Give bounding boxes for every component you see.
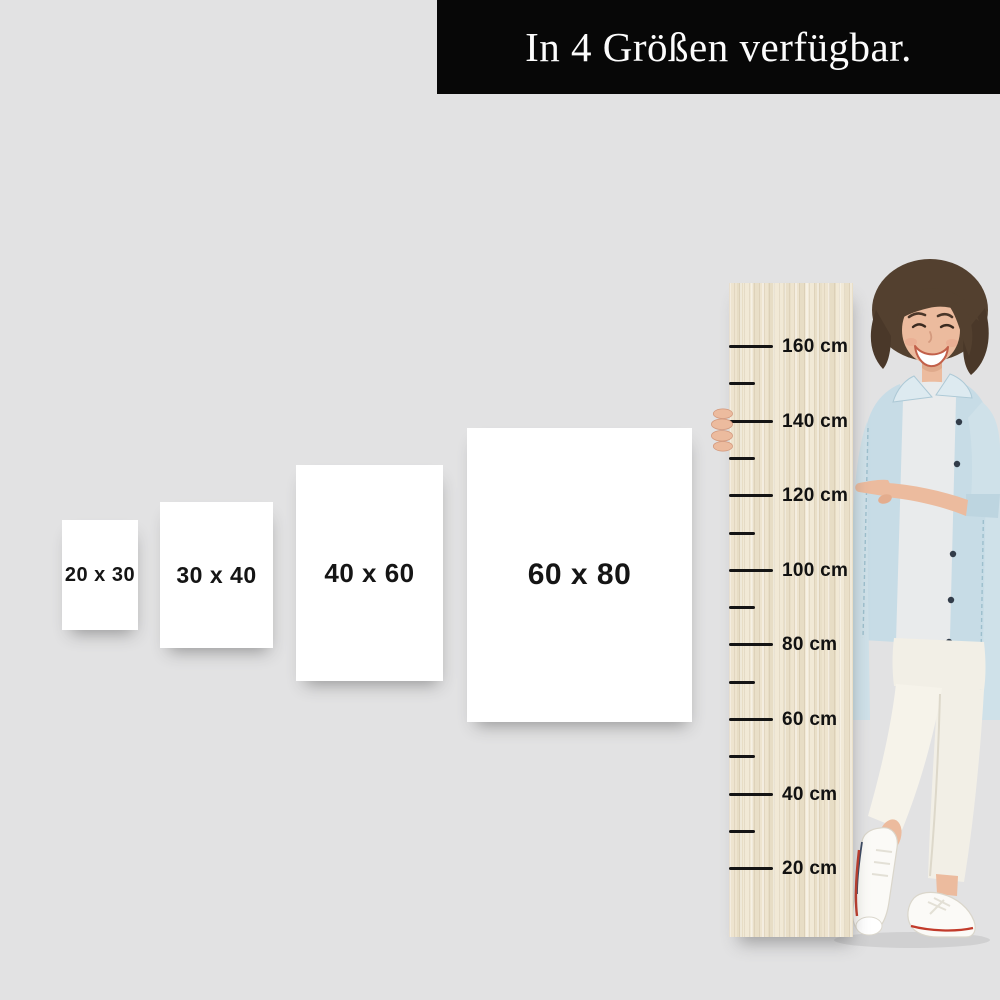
poster-size-30x40: 30 x 40: [160, 502, 273, 648]
toe-cap: [856, 917, 882, 935]
ruler-tick-minor: [729, 830, 755, 833]
ruler-tick-80cm: [729, 643, 773, 646]
ruler-tick-120cm: [729, 494, 773, 497]
poster-size-20x30: 20 x 30: [62, 520, 138, 630]
ruler-tick-minor: [729, 681, 755, 684]
rolled-cuff: [966, 494, 1000, 518]
ruler-label-100cm: 100 cm: [782, 560, 848, 582]
blush: [905, 338, 917, 346]
wooden-height-ruler: 160 cm 140 cm 120 cm 100 cm 80 cm 60 cm …: [729, 283, 853, 937]
ruler-tick-100cm: [729, 569, 773, 572]
ruler-label-80cm: 80 cm: [782, 634, 837, 656]
crossed-leg: [868, 684, 942, 830]
ruler-tick-minor: [729, 755, 755, 758]
ruler-tick-minor: [729, 606, 755, 609]
poster-size-label: 40 x 60: [324, 558, 414, 589]
standing-ankle: [936, 874, 958, 896]
sneaker-crossed: [853, 828, 898, 935]
sneaker-standing: [908, 892, 975, 937]
poster-size-40x60: 40 x 60: [296, 465, 443, 681]
ruler-label-60cm: 60 cm: [782, 709, 837, 731]
ruler-tick-40cm: [729, 793, 773, 796]
blush: [946, 339, 958, 347]
ruler-label-40cm: 40 cm: [782, 784, 837, 806]
pants-hip: [893, 638, 986, 690]
availability-banner: In 4 Größen verfügbar.: [437, 0, 1000, 94]
banner-title: In 4 Größen verfügbar.: [525, 23, 912, 71]
ruler-tick-140cm: [729, 420, 773, 423]
ruler-tick-20cm: [729, 867, 773, 870]
poster-size-label: 30 x 40: [176, 562, 256, 589]
ruler-label-140cm: 140 cm: [782, 411, 848, 433]
ruler-tick-60cm: [729, 718, 773, 721]
ruler-tick-minor: [729, 532, 755, 535]
poster-size-60x80: 60 x 80: [467, 428, 692, 722]
ruler-tick-minor: [729, 382, 755, 385]
size-guide-scene: In 4 Größen verfügbar. 20 x 30 30 x 40 4…: [0, 0, 1000, 1000]
gripping-fingers: [708, 407, 734, 453]
ruler-label-120cm: 120 cm: [782, 485, 848, 507]
ruler-tick-160cm: [729, 345, 773, 348]
ruler-label-20cm: 20 cm: [782, 858, 837, 880]
ruler-label-160cm: 160 cm: [782, 336, 848, 358]
ruler-tick-minor: [729, 457, 755, 460]
poster-size-label: 20 x 30: [65, 564, 135, 587]
poster-size-label: 60 x 80: [528, 558, 632, 592]
